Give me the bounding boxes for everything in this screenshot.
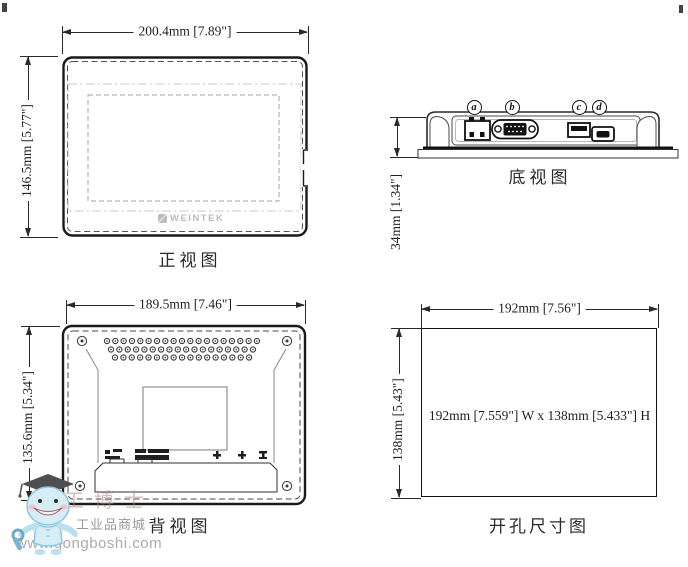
mounting-clamp-right bbox=[637, 117, 656, 149]
cutout-width-dimension: 192mm [7.56"] bbox=[421, 302, 658, 315]
weintek-logo: WEINTEK bbox=[158, 213, 224, 224]
corner-artifact bbox=[2, 3, 7, 12]
port-label-a: a bbox=[467, 100, 482, 115]
extension-line bbox=[658, 304, 659, 328]
bottom-view-title: 底视图 bbox=[478, 163, 602, 188]
extension-line bbox=[391, 498, 421, 499]
front-width-label: 200.4mm [7.89"] bbox=[134, 24, 237, 39]
watermark-mascot bbox=[2, 468, 94, 560]
extension-line bbox=[20, 237, 58, 238]
front-height-label: 146.5mm [5.77"] bbox=[20, 100, 35, 201]
mounting-clamp-left bbox=[430, 117, 449, 149]
port-label-d: d bbox=[592, 100, 607, 115]
front-view-title: 正视图 bbox=[130, 246, 250, 271]
extension-line bbox=[305, 300, 306, 324]
back-width-dimension: 189.5mm [7.46"] bbox=[66, 298, 305, 311]
corner-artifact bbox=[679, 5, 683, 13]
cutout-height-label: 138mm [5.43"] bbox=[391, 374, 406, 465]
front-width-dimension: 200.4mm [7.89"] bbox=[62, 25, 308, 38]
extension-line bbox=[21, 326, 60, 327]
usb-mini-port bbox=[592, 127, 614, 141]
usb-a-port bbox=[568, 123, 590, 137]
port-label-c: c bbox=[572, 100, 587, 115]
extension-line bbox=[62, 26, 63, 54]
side-slot-notch bbox=[301, 149, 308, 187]
cutout-view-title: 开孔尺寸图 bbox=[459, 512, 619, 537]
power-terminal-port bbox=[465, 117, 490, 140]
serial-db9-port bbox=[492, 120, 538, 139]
extension-line bbox=[20, 56, 58, 57]
technical-drawing-canvas: 200.4mm [7.89"] 146.5mm [5.77"] WEINTEK … bbox=[0, 0, 688, 567]
back-view-drawing bbox=[58, 322, 310, 508]
bottom-height-label: 34mm [1.34"] bbox=[389, 170, 404, 254]
cutout-width-label: 192mm [7.56"] bbox=[493, 301, 586, 316]
cutout-size-text: 192mm [7.559"] W x 138mm [5.433"] H bbox=[421, 408, 658, 424]
extension-line bbox=[308, 26, 309, 54]
back-height-label: 135.6mm [5.34"] bbox=[21, 367, 36, 468]
port-label-b: b bbox=[505, 100, 520, 115]
bottom-view-drawing bbox=[390, 96, 688, 168]
extension-line bbox=[66, 300, 67, 324]
extension-line bbox=[421, 304, 422, 328]
weintek-logo-text: WEINTEK bbox=[170, 213, 224, 224]
extension-line bbox=[391, 328, 421, 329]
weintek-logo-icon bbox=[158, 214, 167, 223]
back-width-label: 189.5mm [7.46"] bbox=[134, 297, 237, 312]
front-panel-drawing bbox=[62, 56, 308, 237]
